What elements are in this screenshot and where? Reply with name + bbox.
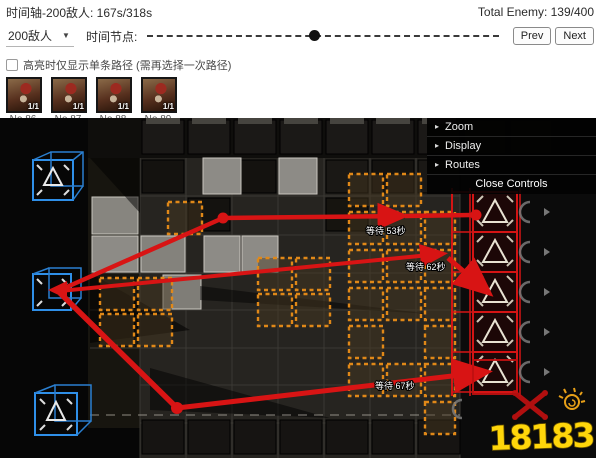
close-controls-button[interactable]: Close Controls [427, 175, 596, 194]
toolbar: 时间轴-200敌人: 167s/318s Total Enemy: 139/40… [0, 0, 600, 125]
time-node-label: 时间节点: [86, 28, 137, 45]
folder-arrow-icon: ▸ [435, 156, 439, 174]
timeline-slider-track[interactable] [147, 35, 498, 37]
timeline-status-label: 时间轴-200敌人: 167s/318s [6, 4, 152, 21]
timeline-slider-handle[interactable] [309, 30, 320, 41]
wait-label-53s: 等待 53秒 [366, 225, 406, 236]
enemy-entry-boxes[interactable] [473, 192, 517, 392]
spawn-box-top[interactable] [33, 152, 83, 200]
folder-display[interactable]: ▸ Display [427, 137, 596, 156]
enemy-portrait-icon[interactable]: 1/1 [141, 77, 177, 113]
enemy-portrait-icon[interactable]: 1/1 [51, 77, 87, 113]
enemy-count-badge: 1/1 [163, 102, 174, 111]
folder-display-label: Display [445, 137, 481, 155]
folder-routes[interactable]: ▸ Routes [427, 156, 596, 175]
timeline-slider[interactable] [147, 30, 498, 42]
folder-arrow-icon: ▸ [435, 118, 439, 136]
enemy-count-badge: 1/1 [28, 102, 39, 111]
highlight-single-route-checkbox[interactable] [6, 59, 18, 71]
highlight-single-route-label: 高亮时仅显示单条路径 (需再选择一次路径) [23, 57, 231, 73]
enemy-count-select-value: 200敌人 [8, 27, 52, 44]
next-button[interactable]: Next [555, 27, 594, 45]
watermark-18183: 18183 [488, 415, 594, 458]
folder-arrow-icon: ▸ [435, 137, 439, 155]
page-bottom-margin [0, 458, 600, 465]
spawn-box-bottom[interactable] [35, 385, 91, 435]
enemy-count-badge: 1/1 [73, 102, 84, 111]
enemy-count-select[interactable]: 200敌人 ▼ [6, 26, 74, 47]
enemy-portrait-icon[interactable]: 1/1 [96, 77, 132, 113]
prev-button[interactable]: Prev [513, 27, 552, 45]
folder-routes-label: Routes [445, 156, 480, 174]
total-enemy-label: Total Enemy: 139/400 [478, 5, 594, 19]
enemy-count-badge: 1/1 [118, 102, 129, 111]
folder-zoom-label: Zoom [445, 118, 473, 136]
wait-label-62s: 等待 62秒 [406, 261, 446, 272]
map-canvas[interactable]: 等待 53秒 等待 62秒 等待 67秒 18183 ▸ Zoom [0, 118, 596, 458]
folder-zoom[interactable]: ▸ Zoom [427, 118, 596, 137]
controls-panel: ▸ Zoom ▸ Display ▸ Routes Close Controls [427, 118, 596, 194]
route-arrow-into-spawn [48, 281, 67, 299]
wait-label-67s: 等待 67秒 [375, 380, 415, 391]
enemy-portrait-icon[interactable]: 1/1 [6, 77, 42, 113]
chevron-down-icon: ▼ [62, 31, 70, 40]
